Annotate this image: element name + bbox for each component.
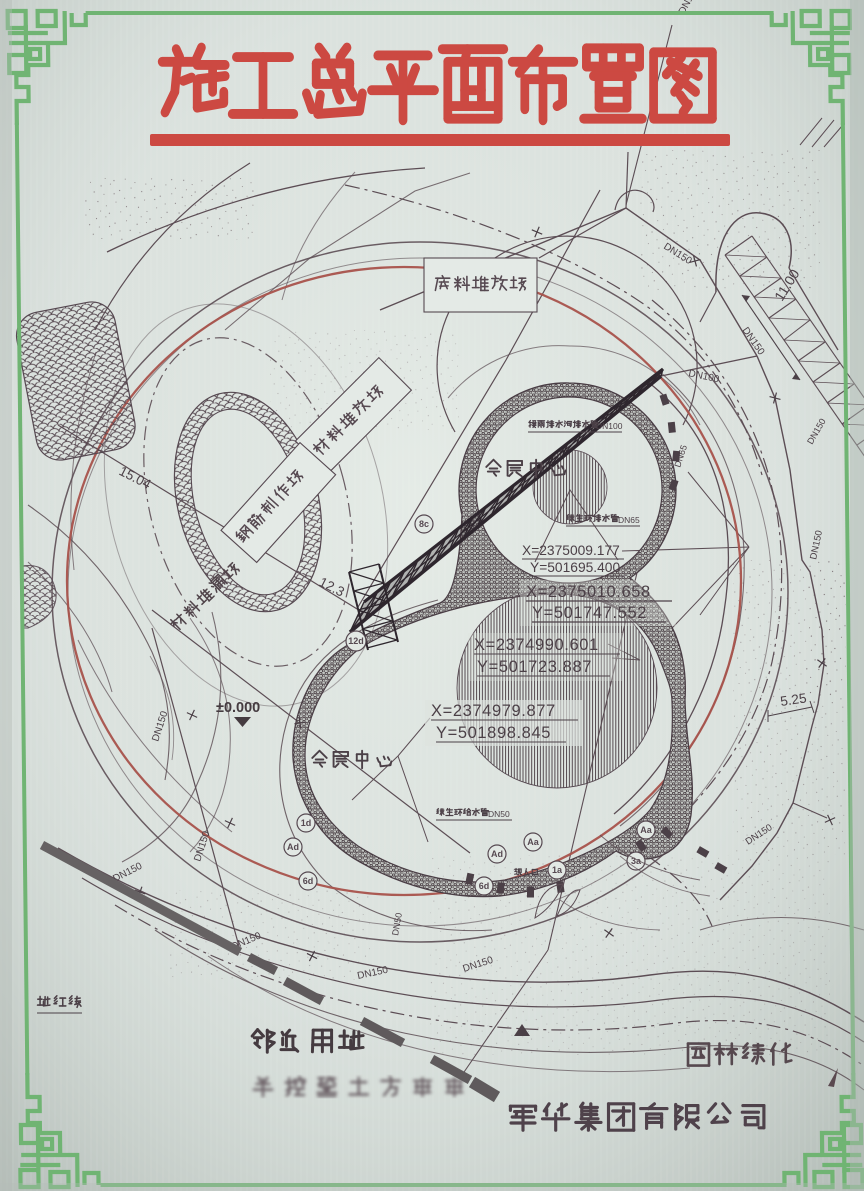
svg-text:DN100: DN100 <box>596 421 623 431</box>
svg-text:Y=501898.845: Y=501898.845 <box>436 724 551 742</box>
svg-text:Y=501723.887: Y=501723.887 <box>477 658 592 676</box>
svg-text:±0.000: ±0.000 <box>216 700 260 716</box>
svg-text:X=2374990.601: X=2374990.601 <box>474 636 599 654</box>
svg-text:X=2374979.877: X=2374979.877 <box>431 702 556 720</box>
svg-text:DN65: DN65 <box>618 515 640 525</box>
svg-text:DN50: DN50 <box>488 809 510 819</box>
svg-text:Aa: Aa <box>527 837 539 847</box>
svg-text:Y=501695.400: Y=501695.400 <box>530 560 620 575</box>
svg-text:X=2375009.177: X=2375009.177 <box>522 543 620 558</box>
svg-text:X=2375010.658: X=2375010.658 <box>526 583 651 601</box>
svg-text:Aa: Aa <box>640 825 652 835</box>
svg-text:12d: 12d <box>348 636 364 646</box>
svg-text:Ad: Ad <box>491 849 503 859</box>
svg-text:8c: 8c <box>419 519 429 529</box>
svg-text:1d: 1d <box>301 818 312 828</box>
svg-text:6d: 6d <box>479 881 490 891</box>
svg-text:Ad: Ad <box>287 842 299 852</box>
svg-text:1a: 1a <box>552 865 563 875</box>
svg-text:6d: 6d <box>303 876 314 886</box>
svg-text:Y=501747.552: Y=501747.552 <box>532 604 647 622</box>
